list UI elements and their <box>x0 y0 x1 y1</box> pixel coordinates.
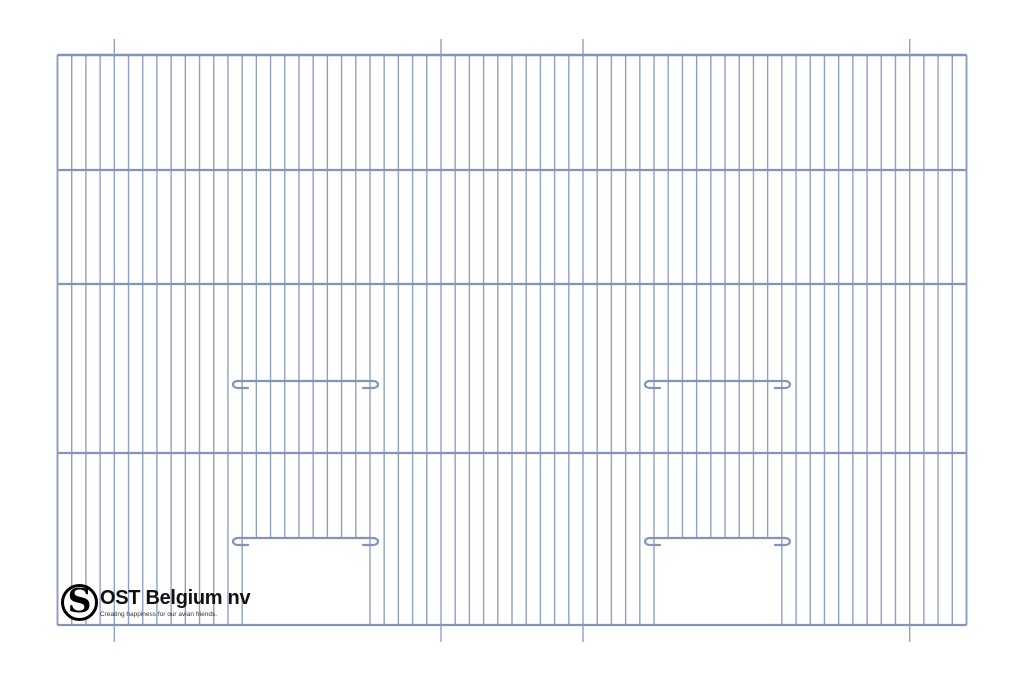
slide-bar-with-hooks <box>645 538 790 545</box>
brand-logo: S OST Belgium nv Creating happiness for … <box>61 584 250 621</box>
monogram-letter: S <box>68 584 92 617</box>
vertical-wires <box>58 55 967 625</box>
brand-text-block: OST Belgium nv Creating happiness for ou… <box>100 584 250 618</box>
bottom-tick-marks <box>114 625 909 642</box>
cage-panel-drawing <box>0 0 1024 683</box>
brand-name: OST Belgium nv <box>100 588 250 608</box>
slide-bar-with-hooks <box>233 538 378 545</box>
top-tick-marks <box>114 39 909 55</box>
ost-circle-monogram-icon: S <box>61 584 98 621</box>
brand-tagline: Creating happiness for our avian friends… <box>100 611 250 618</box>
drawing-canvas: S OST Belgium nv Creating happiness for … <box>0 0 1024 683</box>
